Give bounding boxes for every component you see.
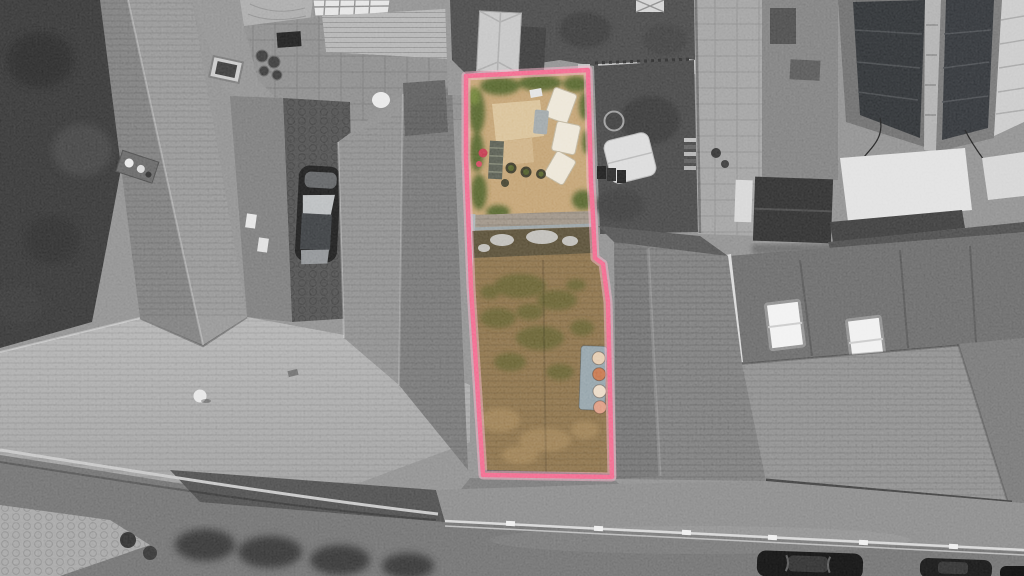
aerial-photo — [0, 0, 1024, 576]
film-grain-overlay — [0, 0, 1024, 576]
